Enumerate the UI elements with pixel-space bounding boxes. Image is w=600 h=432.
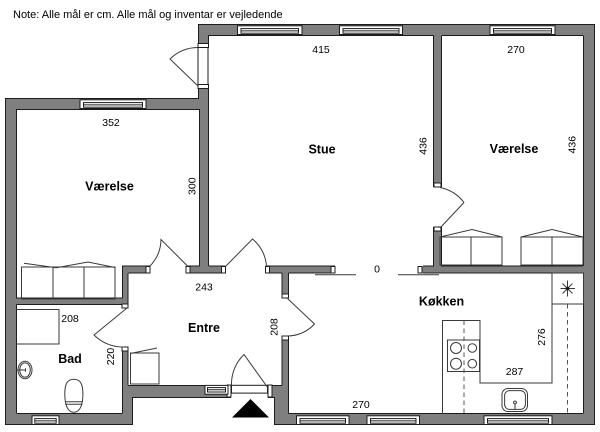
svg-text:270: 270: [507, 44, 525, 56]
svg-text:415: 415: [312, 44, 330, 56]
svg-text:208: 208: [269, 318, 281, 336]
svg-text:352: 352: [102, 117, 120, 129]
svg-text:436: 436: [418, 137, 430, 155]
svg-text:300: 300: [187, 177, 199, 195]
svg-text:Værelse: Værelse: [490, 142, 539, 156]
svg-text:Bad: Bad: [58, 352, 82, 366]
svg-text:220: 220: [105, 348, 117, 366]
svg-text:Note: Alle mål er cm. Alle mål: Note: Alle mål er cm. Alle mål og invent…: [13, 9, 283, 21]
svg-text:208: 208: [61, 313, 79, 325]
svg-text:270: 270: [352, 399, 370, 411]
svg-text:Værelse: Værelse: [85, 180, 134, 194]
svg-text:276: 276: [536, 328, 548, 346]
svg-text:Stue: Stue: [308, 143, 335, 157]
svg-text:0: 0: [374, 264, 380, 276]
svg-text:287: 287: [506, 366, 524, 378]
svg-text:Entre: Entre: [188, 321, 220, 335]
svg-text:Køkken: Køkken: [419, 295, 464, 309]
svg-text:436: 436: [567, 136, 579, 154]
svg-text:243: 243: [195, 282, 213, 294]
